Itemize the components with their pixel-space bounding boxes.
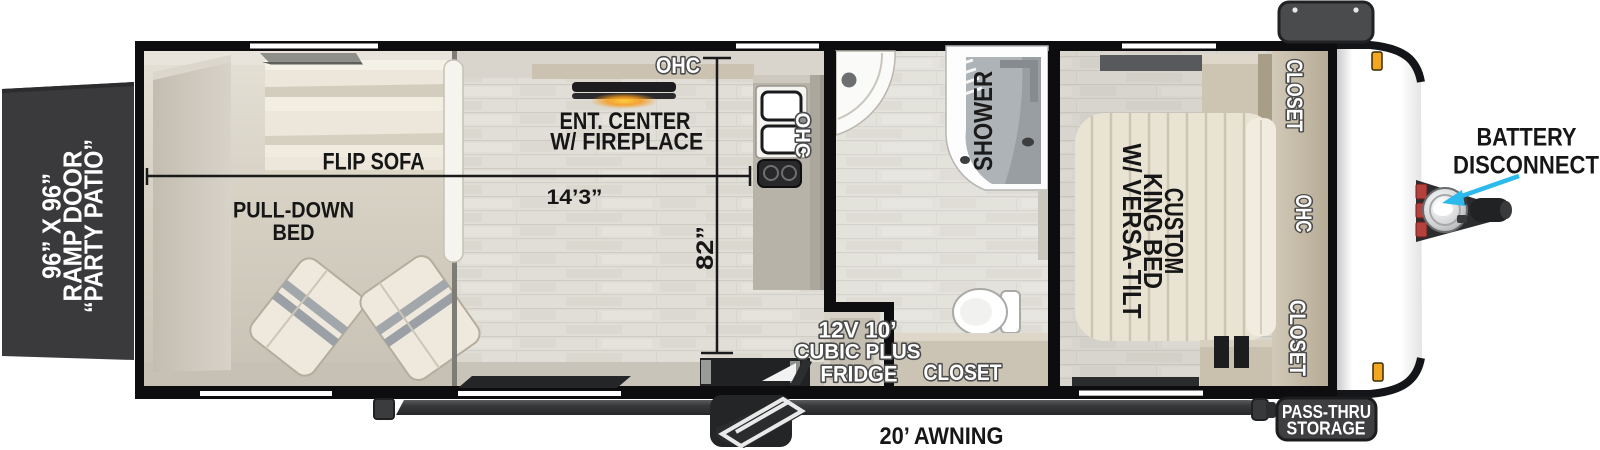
svg-text:CLOSET: CLOSET <box>924 360 1002 385</box>
svg-text:82”: 82” <box>692 226 719 270</box>
svg-text:SHOWER: SHOWER <box>968 71 998 171</box>
svg-text:CLOSET: CLOSET <box>1285 300 1310 376</box>
svg-text:PULL-DOWN: PULL-DOWN <box>233 198 354 223</box>
svg-text:DISCONNECT: DISCONNECT <box>1453 151 1599 179</box>
svg-text:12V 10’: 12V 10’ <box>819 318 897 343</box>
svg-text:BED: BED <box>273 220 315 245</box>
svg-text:CLOSET: CLOSET <box>1282 59 1307 131</box>
svg-text:OHC: OHC <box>656 53 700 78</box>
svg-text:FLIP SOFA: FLIP SOFA <box>323 149 425 176</box>
svg-text:W/ FIREPLACE: W/ FIREPLACE <box>550 129 703 156</box>
svg-text:20’ AWNING: 20’ AWNING <box>880 423 1004 450</box>
svg-text:OHC: OHC <box>791 113 813 158</box>
svg-text:OHC: OHC <box>1291 195 1316 233</box>
svg-text:CUBIC PLUS: CUBIC PLUS <box>795 341 921 364</box>
svg-text:“PARTY PATIO”: “PARTY PATIO” <box>81 139 109 313</box>
svg-text:14’3”: 14’3” <box>547 185 603 209</box>
svg-text:STORAGE: STORAGE <box>1287 418 1366 439</box>
svg-text:BATTERY: BATTERY <box>1477 123 1577 151</box>
svg-text:W/ VERSA-TILT: W/ VERSA-TILT <box>1117 144 1147 319</box>
svg-text:FRIDGE: FRIDGE <box>821 362 898 387</box>
